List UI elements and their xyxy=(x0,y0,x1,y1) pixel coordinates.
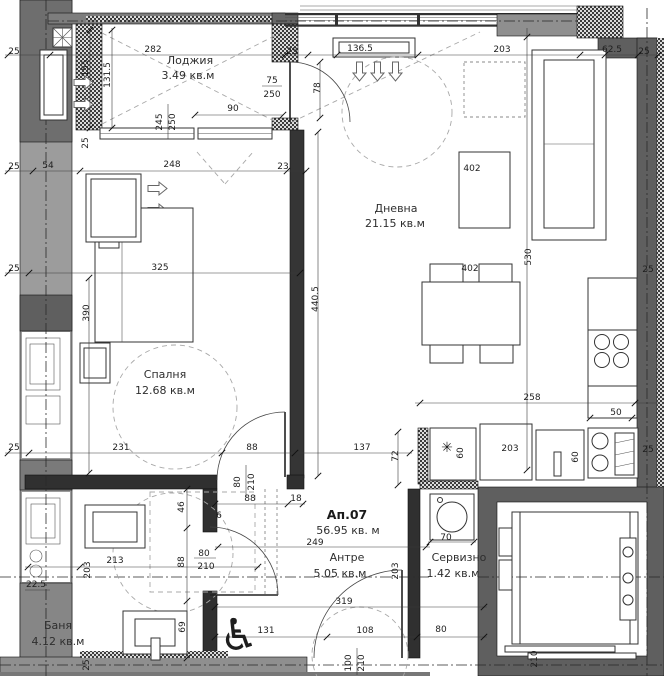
loggia-radiator xyxy=(40,50,67,120)
dim-label: 390 xyxy=(82,304,92,321)
bath-vanity xyxy=(85,505,145,548)
dim-label: 250 xyxy=(263,90,280,100)
dim-label: 25 xyxy=(8,162,19,172)
dim-label: 155 xyxy=(81,59,91,76)
dim-label: 25 xyxy=(8,264,19,274)
room-name-hall: Антре xyxy=(330,551,365,564)
dim-label: 72 xyxy=(391,450,401,461)
dim-label: 203 xyxy=(501,444,518,454)
dim-label: 62.5 xyxy=(602,45,622,55)
dim-label: 231 xyxy=(112,443,129,453)
loggia-window xyxy=(100,128,272,139)
ac-unit xyxy=(53,28,72,47)
room-name-bath: Баня xyxy=(44,619,72,632)
dim-label: 325 xyxy=(151,263,168,273)
kitchen-sink xyxy=(588,428,638,478)
room-name-service: Сервизно xyxy=(432,551,487,564)
door-spec: 80 xyxy=(233,476,243,488)
dim-label: 213 xyxy=(106,556,123,566)
fridge-star-icon: ✳ xyxy=(441,440,453,456)
dim-label: 203 xyxy=(493,45,510,55)
toilet xyxy=(123,611,187,660)
bathroom-door xyxy=(210,527,278,595)
kitchen-counter xyxy=(588,278,637,418)
dim-label: 75 xyxy=(266,76,277,86)
dim-label: 136.5 xyxy=(347,44,373,54)
dim-label: 88 xyxy=(246,443,258,453)
dim-label: 6 xyxy=(216,511,222,521)
arrow-down-icon xyxy=(353,62,366,81)
doors xyxy=(210,62,402,658)
dim-label: 78 xyxy=(313,82,323,94)
room-area-bath: 4.12 кв.м xyxy=(32,635,85,648)
dim-label: 203 xyxy=(83,561,93,578)
floor-plan: 25 282 25 136.5 203 62.5 25 Лоджия 3.49 … xyxy=(0,0,664,676)
room-area-service: 1.42 кв.м xyxy=(427,567,480,580)
dim-label: 80 xyxy=(435,625,447,635)
door-spec: 210 xyxy=(197,562,214,572)
arrow-down-icon xyxy=(389,62,402,81)
dim-label: 131 xyxy=(257,626,274,636)
dim-label: 108 xyxy=(356,626,373,636)
dim-label: 50 xyxy=(610,408,622,418)
dim-label: 88 xyxy=(244,494,256,504)
dim-label: 88 xyxy=(177,556,187,568)
dim-label: 25 xyxy=(638,47,649,57)
floor-plan-drawing: 25 282 25 136.5 203 62.5 25 Лоджия 3.49 … xyxy=(0,0,664,676)
door-spec: 80 xyxy=(198,549,210,559)
fridge xyxy=(430,428,476,480)
dim-label: 249 xyxy=(306,538,323,548)
door-spec: 210 xyxy=(357,654,367,671)
room-name-loggia: Лоджия xyxy=(167,54,213,67)
dim-label: 203 xyxy=(391,562,401,579)
room-area-hall: 5.05 кв.м xyxy=(314,567,367,580)
room-name-living: Дневна xyxy=(375,202,418,215)
room-name-bedroom: Спалня xyxy=(144,368,186,381)
dim-label: 22.5 xyxy=(26,580,46,590)
apartment-number: Ап.07 xyxy=(327,507,367,522)
entrance-door xyxy=(314,570,402,658)
dim-label: 530 xyxy=(524,248,534,265)
dim-label: 258 xyxy=(523,393,540,403)
dim-label: 319 xyxy=(335,597,352,607)
sofa xyxy=(532,50,606,240)
dim-label: 25 xyxy=(8,47,19,57)
window-sill-136 xyxy=(333,38,415,57)
dim-label: 25 xyxy=(82,659,92,670)
dim-label: 282 xyxy=(144,45,161,55)
arrow-down-icon xyxy=(371,62,384,81)
dim-label: 70 xyxy=(440,533,452,543)
door-spec: 210 xyxy=(247,473,257,490)
apartment-area: 56.95 кв. м xyxy=(316,524,379,537)
bedroom-radiator xyxy=(86,174,141,242)
room-area-loggia: 3.49 кв.м xyxy=(162,69,215,82)
dim-label: 25 xyxy=(642,265,653,275)
dim-label: 60 xyxy=(456,447,466,459)
arrow-right-icon xyxy=(148,182,167,195)
dim-label: 245 xyxy=(155,113,165,130)
room-area-living: 21.15 кв.м xyxy=(365,217,425,230)
room-area-bedroom: 12.68 кв.м xyxy=(135,384,195,397)
nightstand xyxy=(80,343,110,383)
dim-label: 60 xyxy=(571,451,581,463)
dim-label: 131.5 xyxy=(103,62,113,88)
door-spec: 100 xyxy=(344,654,354,671)
dim-label: 18 xyxy=(290,494,302,504)
wheelchair-icon: ♿ xyxy=(219,610,258,661)
furniture-label: 402 xyxy=(463,164,480,174)
dim-label: 248 xyxy=(163,160,180,170)
dim-label: 137 xyxy=(353,443,370,453)
washing-machine xyxy=(430,494,474,540)
dim-label: 69 xyxy=(178,621,188,633)
dim-label: 250 xyxy=(168,113,178,130)
furniture-label: 402 xyxy=(461,264,478,274)
dim-label: 210 xyxy=(530,650,540,667)
dim-label: 46 xyxy=(177,501,187,513)
dim-label: 90 xyxy=(227,104,239,114)
dim-label: 440.5 xyxy=(311,286,321,312)
dining-set xyxy=(422,264,520,363)
dim-label: 54 xyxy=(42,161,54,171)
dim-label: 25 xyxy=(81,137,91,148)
dim-label: 25 xyxy=(642,445,653,455)
